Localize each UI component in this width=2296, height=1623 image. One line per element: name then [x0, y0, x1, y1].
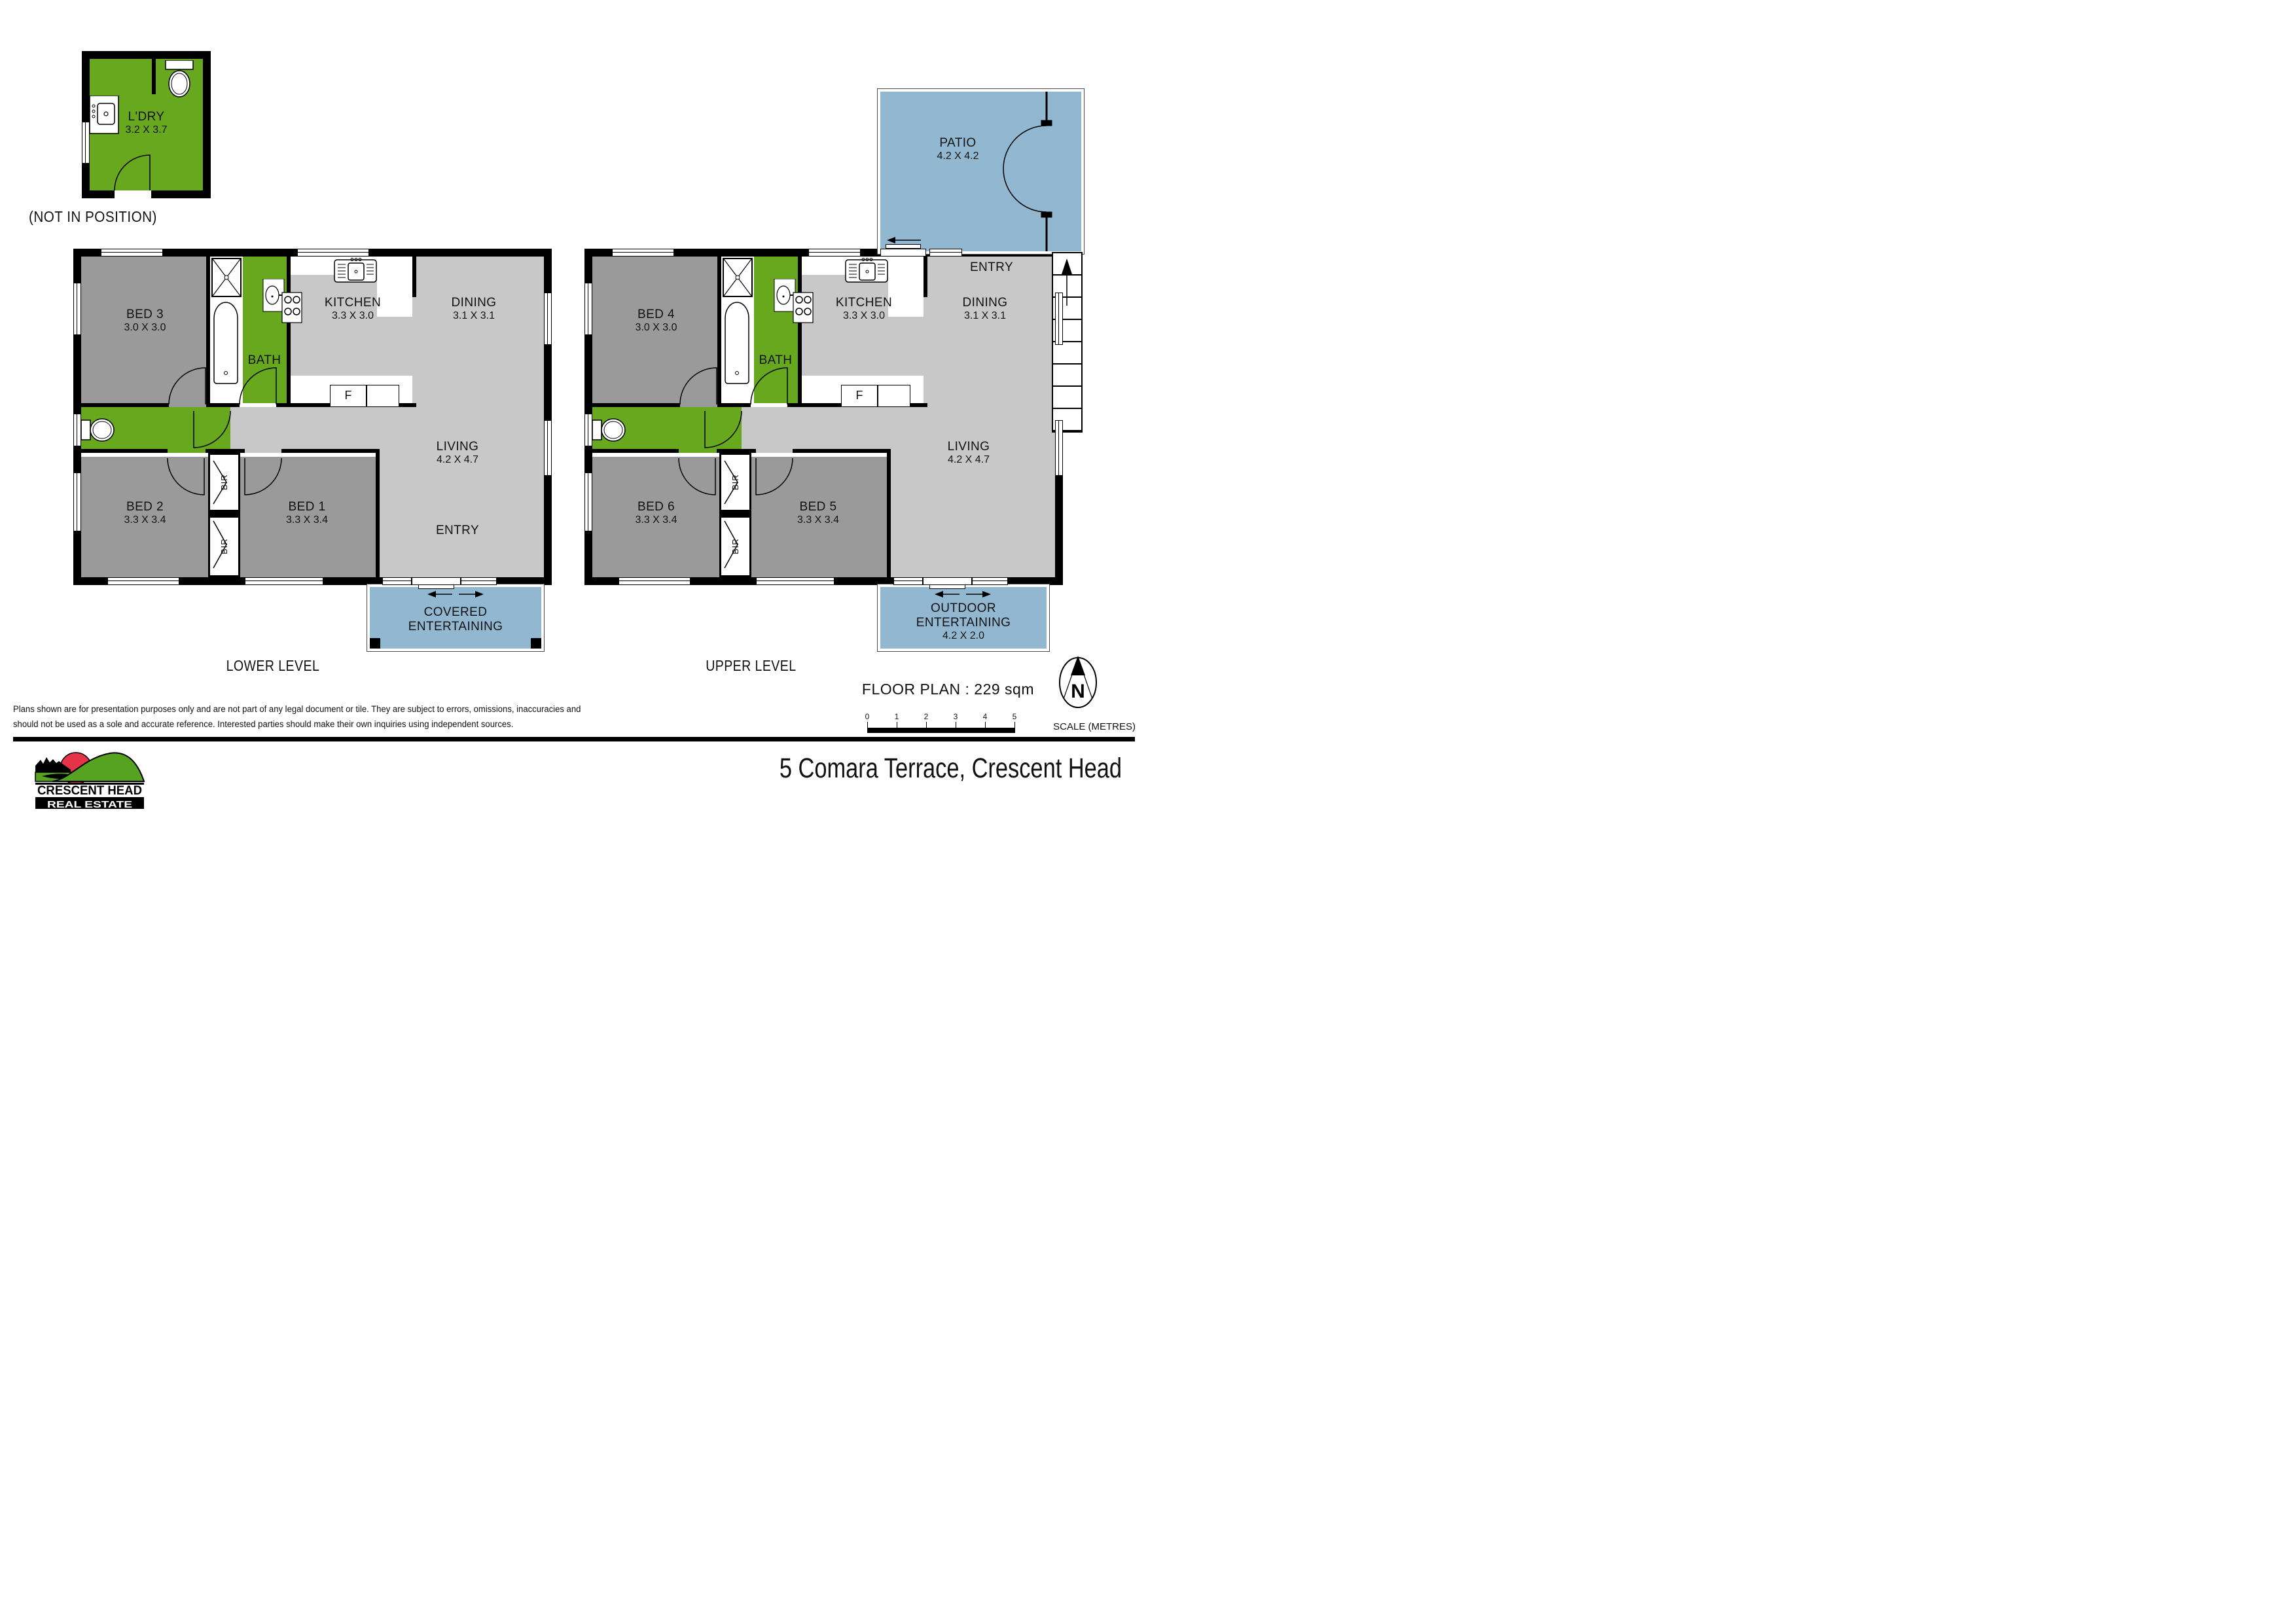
- room-dims: 3.3 X 3.4: [605, 514, 707, 526]
- bir-closet: BIR: [719, 516, 751, 577]
- window: [756, 577, 834, 585]
- room-name: BED 1: [255, 500, 359, 514]
- window: [544, 293, 552, 345]
- window: [584, 283, 592, 335]
- fridge-box: F: [330, 385, 367, 407]
- room-name: OUTDOOR: [878, 601, 1049, 616]
- toilet-icon: [81, 415, 117, 445]
- window: [101, 249, 163, 257]
- window: [1055, 293, 1063, 345]
- window: [73, 283, 81, 335]
- bathtub-icon: [723, 300, 751, 385]
- laundry-door-gap: [115, 190, 151, 198]
- kitchen-sink-icon: [334, 258, 377, 283]
- upper-level-plan: BIR BIR: [584, 249, 1063, 585]
- slide-arrow-icon: [426, 590, 485, 599]
- compass-icon: N: [1055, 652, 1101, 711]
- room-dims: 3.1 X 3.1: [929, 310, 1041, 322]
- patio-area: PATIO 4.2 X 4.2: [877, 88, 1085, 255]
- bathtub-icon: [212, 300, 240, 385]
- room-dims: 3.3 X 3.4: [255, 514, 359, 526]
- room-name: BED 4: [605, 308, 707, 322]
- room-name: BED 2: [94, 500, 196, 514]
- toilet-icon: [163, 60, 196, 99]
- window: [584, 414, 592, 446]
- scale-tick: 3: [948, 712, 963, 721]
- bir-label: BIR: [210, 455, 238, 510]
- room-name: ENTERTAINING: [367, 620, 544, 634]
- room-name: ENTRY: [402, 524, 513, 538]
- bir-label: BIR: [210, 518, 238, 575]
- room-dims: 4.2 X 4.2: [897, 151, 1018, 162]
- room-dims: 3.3 X 3.4: [94, 514, 196, 526]
- property-address: 5 Comara Terrace, Crescent Head: [780, 753, 1122, 785]
- laundry-stub-wall: [152, 59, 156, 94]
- logo-name: CRESCENT HEAD: [37, 784, 142, 798]
- scale-tick: 0: [860, 712, 874, 721]
- fridge-box: F: [841, 385, 878, 407]
- fridge-label: F: [345, 389, 352, 402]
- fridge-label: F: [856, 389, 863, 402]
- floor-plan-area-label: FLOOR PLAN : 229 sqm: [772, 681, 1034, 698]
- logo-subname: REAL ESTATE: [47, 799, 132, 809]
- room-name: LIVING: [402, 440, 513, 454]
- room-name: KITCHEN: [297, 296, 408, 310]
- disclaimer-line1: Plans shown are for presentation purpose…: [13, 704, 581, 714]
- window: [1055, 420, 1063, 476]
- entry-sliding-door: [880, 249, 926, 257]
- window: [808, 249, 861, 257]
- laundry-block: L'DRY 3.2 X 3.7: [82, 51, 211, 198]
- window: [619, 577, 691, 585]
- shower-icon: [211, 258, 242, 297]
- room-name: BED 6: [605, 500, 707, 514]
- scale-units-label: SCALE (METRES): [1005, 721, 1136, 732]
- room-living: [376, 407, 544, 577]
- lower-level-plan: BIR BIR: [73, 249, 552, 585]
- room-dims: 3.3 X 3.4: [766, 514, 870, 526]
- room-name: PATIO: [897, 136, 1018, 151]
- window: [297, 249, 369, 257]
- room-name: ENTERTAINING: [878, 616, 1049, 630]
- room-name: LIVING: [913, 440, 1024, 454]
- room-dims: 3.3 X 3.0: [297, 310, 408, 322]
- window: [972, 577, 1008, 585]
- bir-closet: BIR: [719, 453, 751, 512]
- room-name: KITCHEN: [808, 296, 920, 310]
- floorplan-page: L'DRY 3.2 X 3.7 (NOT IN POSITION): [0, 0, 1148, 811]
- toilet-icon: [592, 415, 628, 445]
- entry-door-sill: [886, 244, 921, 249]
- room-name: DINING: [418, 296, 529, 310]
- room-dims: 3.0 X 3.0: [605, 322, 707, 334]
- scale-tick: 5: [1007, 712, 1022, 721]
- room-dims: 4.2 X 2.0: [878, 630, 1049, 642]
- bir-label: BIR: [721, 455, 749, 510]
- pantry-box: [367, 385, 399, 407]
- footer-divider: [13, 737, 1135, 741]
- window: [107, 577, 179, 585]
- room-living: [887, 407, 1055, 577]
- kitchen-counter2: [888, 317, 924, 376]
- room-name: DINING: [929, 296, 1041, 310]
- room-name: ENTRY: [939, 260, 1044, 275]
- laundry-label: L'DRY 3.2 X 3.7: [90, 110, 203, 136]
- window: [382, 577, 412, 585]
- agency-logo: CRESCENT HEAD REAL ESTATE: [33, 746, 154, 809]
- scale-bar: 0 1 2 3 4 5: [867, 712, 1024, 738]
- window: [461, 577, 497, 585]
- scale-tick: 4: [978, 712, 992, 721]
- compass-letter: N: [1071, 681, 1085, 702]
- room-name: BATH: [744, 353, 807, 368]
- room-dims: 3.0 X 3.0: [94, 322, 196, 334]
- window: [612, 249, 674, 257]
- room-dims: 3.1 X 3.1: [418, 310, 529, 322]
- lower-level-label: LOWER LEVEL: [155, 657, 391, 675]
- room-dims: 4.2 X 4.7: [402, 454, 513, 466]
- sliding-door-sill: [929, 584, 965, 589]
- window: [584, 473, 592, 531]
- slide-arrow-icon: [933, 590, 992, 599]
- pantry-box: [878, 385, 910, 407]
- scale-tick: 2: [919, 712, 933, 721]
- room-dims: 3.2 X 3.7: [90, 124, 203, 136]
- window: [73, 473, 81, 531]
- not-in-position-note: (NOT IN POSITION): [29, 208, 171, 226]
- scale-tick: 1: [889, 712, 904, 721]
- bir-closet: BIR: [208, 516, 240, 577]
- window: [73, 414, 81, 446]
- room-name: BED 3: [94, 308, 196, 322]
- kitchen-sink-icon: [845, 258, 888, 283]
- window: [544, 420, 552, 476]
- outdoor-entertaining-area: OUTDOOR ENTERTAINING 4.2 X 2.0: [877, 584, 1050, 652]
- window: [893, 577, 923, 585]
- entry-arrow-icon: [886, 236, 925, 245]
- window: [245, 577, 323, 585]
- room-name: BED 5: [766, 500, 870, 514]
- window: [82, 122, 90, 164]
- room-name: BATH: [233, 353, 296, 368]
- disclaimer-line2: should not be used as a sole and accurat…: [13, 719, 513, 729]
- room-name: COVERED: [367, 605, 544, 620]
- room-name: L'DRY: [90, 110, 203, 124]
- window: [929, 249, 962, 257]
- upper-level-label: UPPER LEVEL: [633, 657, 869, 675]
- shower-icon: [723, 258, 753, 297]
- bir-label: BIR: [721, 518, 749, 575]
- hallway: [742, 407, 887, 453]
- hallway: [230, 407, 376, 453]
- kitchen-counter2: [377, 317, 412, 376]
- room-dims: 3.3 X 3.0: [808, 310, 920, 322]
- room-dims: 4.2 X 4.7: [913, 454, 1024, 466]
- covered-entertaining-area: COVERED ENTERTAINING: [367, 584, 545, 652]
- sliding-door-sill: [418, 584, 454, 589]
- kitchen-counter: [802, 275, 888, 376]
- kitchen-counter: [291, 275, 377, 376]
- bir-closet: BIR: [208, 453, 240, 512]
